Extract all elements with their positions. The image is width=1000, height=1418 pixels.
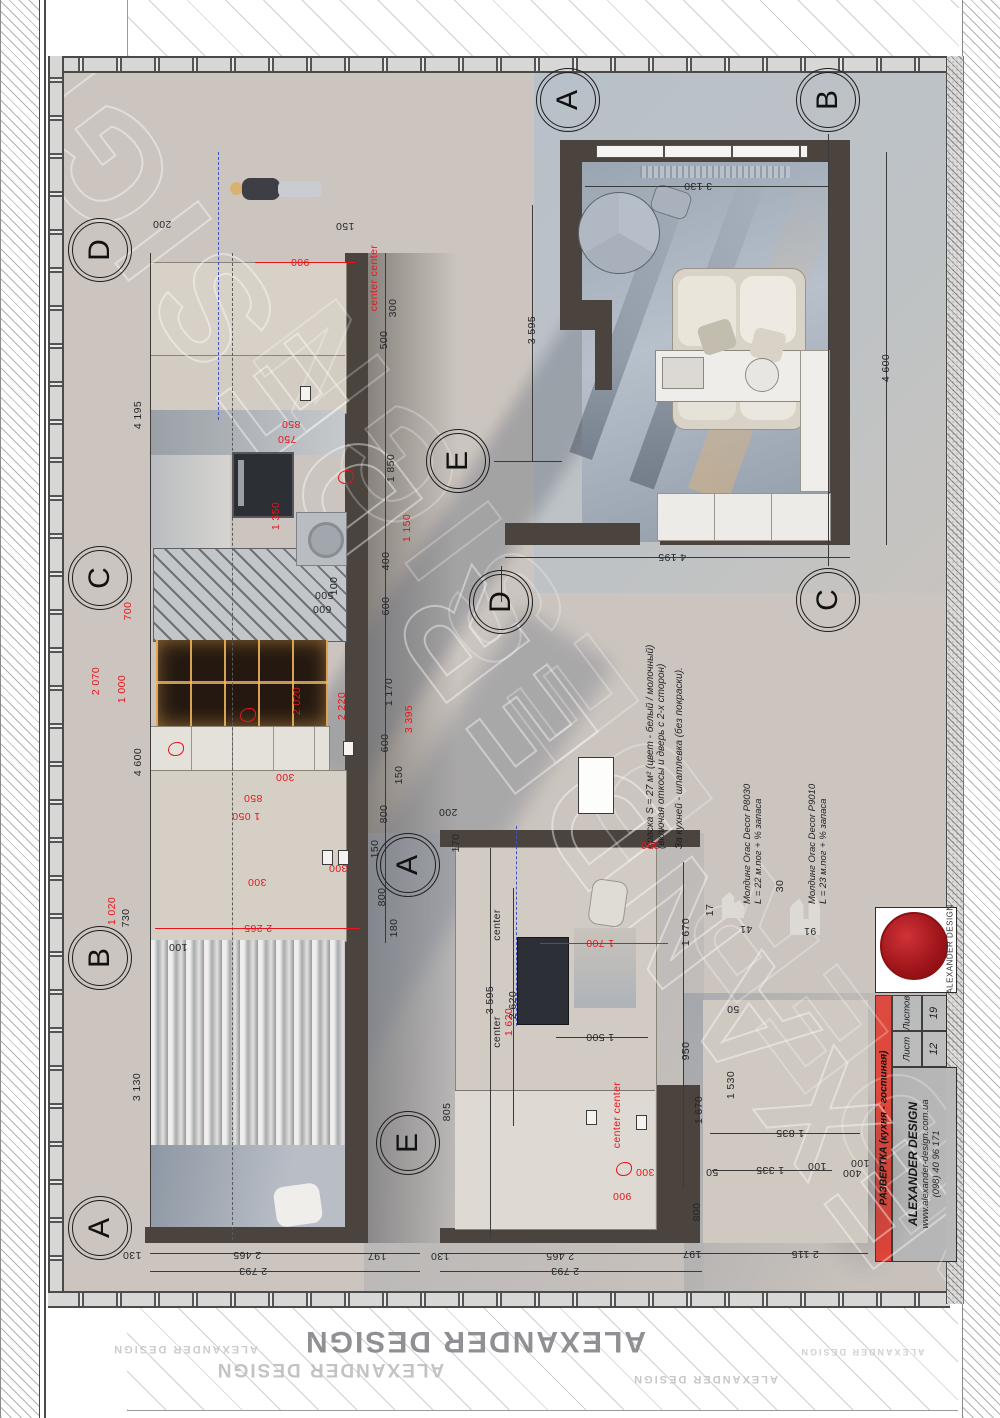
molding-note-1: Молдинг Orac Decor P8030 L = 22 м.пог + … [742, 752, 764, 904]
tv-panel [517, 937, 569, 1025]
cabinet-band-bottom [657, 493, 831, 541]
right-margin-hatch [962, 0, 1000, 1418]
room-wall-bottom-left [505, 523, 640, 545]
kitchen-tall-cabinet [150, 455, 230, 548]
molding-1-length: L = 22 м.пог + % запаса [753, 752, 764, 904]
company-info: ALEXANDER DESIGN www.alexander-design.co… [906, 1099, 942, 1228]
sheet-value: 12 [928, 1043, 940, 1055]
room-window [596, 145, 808, 158]
sheet-left-line [44, 0, 46, 1418]
counter-sink [662, 357, 704, 389]
desk-chair [587, 878, 629, 929]
bottom-margin-hatch [127, 1308, 958, 1411]
molding-1-name: Молдинг Orac Decor P8030 [742, 752, 753, 904]
person-torso [242, 178, 280, 200]
approval-stamp [880, 912, 948, 980]
person-figure [228, 172, 323, 206]
wine-rack-shelf-line [156, 681, 328, 684]
person-legs [278, 181, 322, 197]
cabinet-column-right [800, 350, 830, 492]
room-wall-right [828, 140, 850, 545]
sheet-label: Лист [902, 1037, 913, 1061]
left-edge-hatch-strip [0, 0, 40, 1418]
kitchen-upper-cabinets [150, 410, 345, 455]
washing-machine-door [308, 522, 344, 558]
strip-right-wall-band [345, 253, 368, 1243]
oven-handle [238, 460, 244, 506]
room-wall-left-step [560, 300, 612, 330]
wardrobe-section [150, 770, 347, 942]
center-elevation-right-wall [655, 1085, 700, 1243]
door-lower-rail [150, 355, 345, 411]
lower-drawer-cabinet [150, 726, 330, 772]
paint-note-line3: За кухней - шпатлевка (без покраски). [674, 557, 685, 849]
bed-footboard [145, 1227, 350, 1243]
company-phone: (098) 40 96 171 [931, 1099, 942, 1228]
room-wall-left-pier [595, 330, 612, 390]
center-lower-cabinet [455, 1090, 655, 1229]
right-elevation-wall [703, 1000, 868, 1243]
round-table [578, 192, 660, 274]
counter-cooktop [745, 358, 779, 392]
frame-bottom-band [48, 1291, 950, 1308]
curtains [150, 940, 345, 1145]
sheets-total-value: 19 [928, 1007, 940, 1019]
bed-pillow [272, 1182, 323, 1228]
frame-left-band [48, 56, 64, 1291]
strip-cast-shadow [368, 253, 458, 1243]
paint-swatch [578, 757, 614, 814]
molding-2-name: Молдинг Orac Decor P9010 [807, 752, 818, 904]
paint-note-line1: Краска S = 27 м² (цвет - белый / молочны… [645, 557, 656, 849]
company-website: www.alexander-design.com.ua [920, 1099, 931, 1228]
center-elevation-floor [440, 1228, 700, 1243]
drawing-sheet: ALEXANDER DESIGN ALEXANDER DESIGN [0, 0, 1000, 1418]
desk [574, 928, 636, 1008]
molding-note-2: Молдинг Orac Decor P9010 L = 23 м.пог + … [807, 752, 829, 904]
sheets-total-label: Листов [902, 996, 913, 1031]
top-margin-hatch [127, 0, 959, 56]
paint-note: Краска S = 27 м² (цвет - белый / молочны… [645, 557, 685, 849]
paint-note-line2: (включая откосы и дверь с 2-х сторон) [656, 557, 667, 849]
company-name: ALEXANDER DESIGN [906, 1099, 920, 1228]
stamp-side-text: ALEXANDER DESIGN [946, 904, 955, 993]
project-type-title: РАЗВЕРТКА (кухня - гостиная) [879, 1051, 890, 1206]
molding-2-length: L = 23 м.пог + % запаса [818, 752, 829, 904]
frame-top-band [48, 56, 950, 73]
room-radiator [640, 166, 790, 178]
